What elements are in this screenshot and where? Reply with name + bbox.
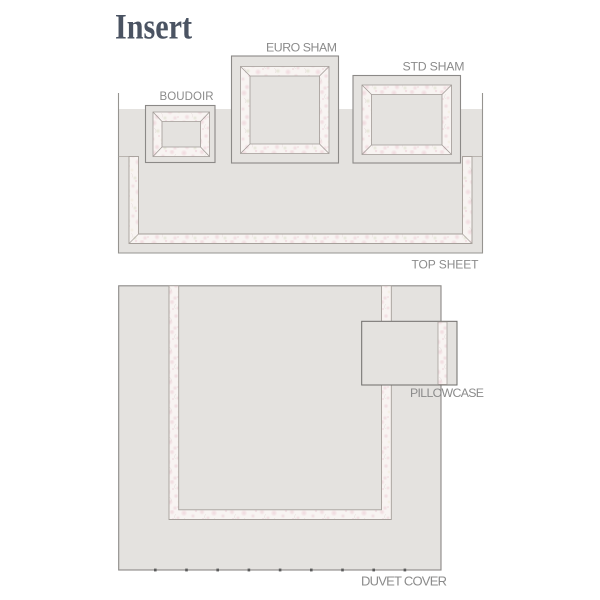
svg-text:DUVET COVER: DUVET COVER xyxy=(361,574,447,589)
svg-text:EURO SHAM: EURO SHAM xyxy=(266,41,337,55)
svg-text:STD SHAM: STD SHAM xyxy=(403,60,465,74)
svg-text:PILLOWCASE: PILLOWCASE xyxy=(410,386,484,400)
svg-text:TOP SHEET: TOP SHEET xyxy=(412,257,480,271)
svg-text:Insert: Insert xyxy=(115,7,192,47)
svg-text:BOUDOIR: BOUDOIR xyxy=(160,91,214,103)
